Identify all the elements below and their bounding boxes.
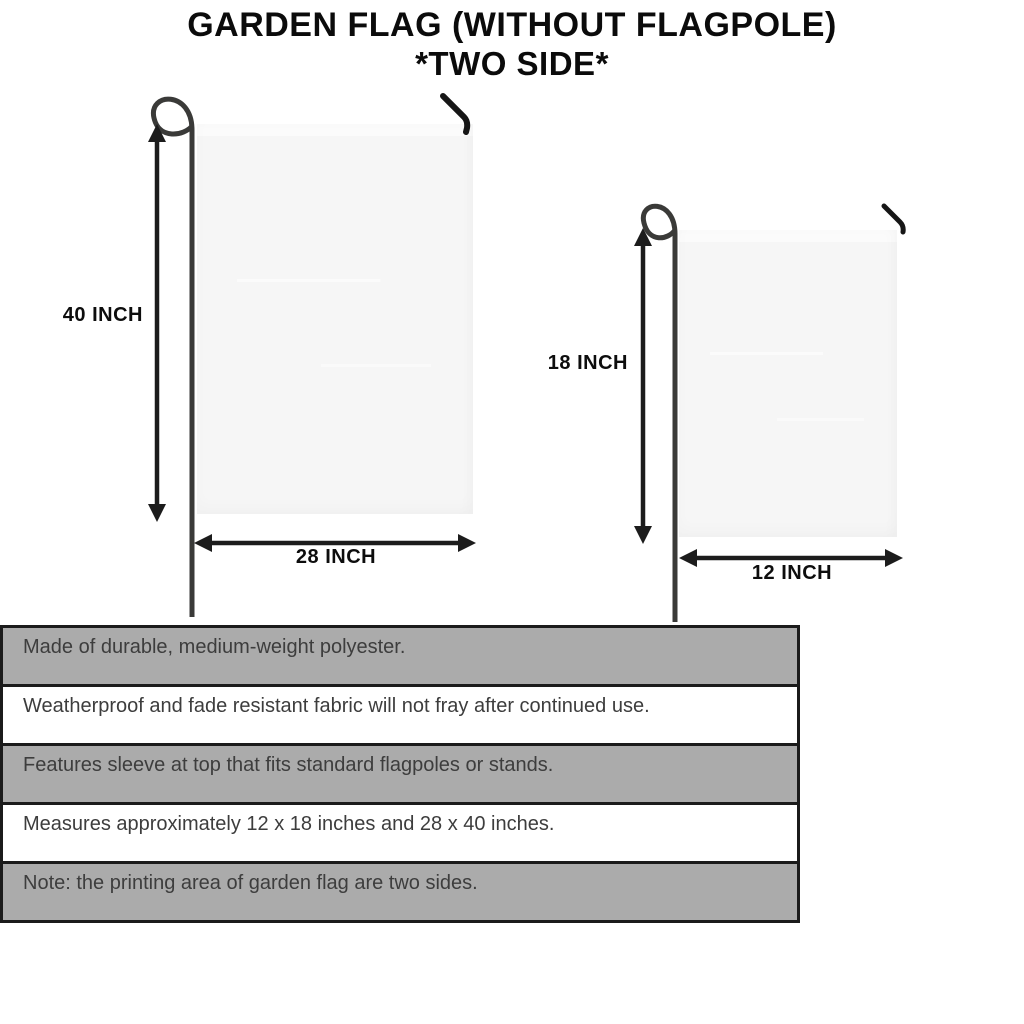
small-flag-panel xyxy=(679,230,897,537)
dimension-arrow-icon xyxy=(634,228,652,246)
page-title-line1: GARDEN FLAG (WITHOUT FLAGPOLE) xyxy=(0,6,1024,45)
large-flag-width-label: 28 INCH xyxy=(230,546,442,569)
small-flag-height-arrow xyxy=(630,228,656,544)
table-row: Note: the printing area of garden flag a… xyxy=(3,861,797,920)
large-flag-panel xyxy=(197,124,473,514)
dimension-arrow-icon xyxy=(148,124,166,142)
dimension-arrow-icon xyxy=(458,534,476,552)
large-flag-height-label: 40 INCH xyxy=(38,304,143,327)
table-row: Made of durable, medium-weight polyester… xyxy=(3,628,797,684)
table-row-text: Note: the printing area of garden flag a… xyxy=(23,872,478,894)
table-row: Weatherproof and fade resistant fabric w… xyxy=(3,684,797,743)
table-row-text: Measures approximately 12 x 18 inches an… xyxy=(23,813,554,835)
dimension-arrow-icon xyxy=(634,526,652,544)
small-flag-width-label: 12 INCH xyxy=(686,562,898,585)
hanger-hook-icon xyxy=(884,206,903,232)
table-row-text: Features sleeve at top that fits standar… xyxy=(23,754,553,776)
large-flag-hanger xyxy=(435,88,475,138)
product-info-image: GARDEN FLAG (WITHOUT FLAGPOLE) *TWO SIDE… xyxy=(0,0,1024,1024)
dimension-arrow-icon xyxy=(194,534,212,552)
page-title-line2: *TWO SIDE* xyxy=(0,45,1024,83)
dimension-arrow-icon xyxy=(148,504,166,522)
page-title: GARDEN FLAG (WITHOUT FLAGPOLE) *TWO SIDE… xyxy=(0,6,1024,83)
large-flag-height-arrow xyxy=(144,124,170,522)
hanger-hook-icon xyxy=(443,96,467,132)
spec-table: Made of durable, medium-weight polyester… xyxy=(0,625,800,923)
table-row-text: Made of durable, medium-weight polyester… xyxy=(23,636,405,658)
small-flag-hanger xyxy=(878,198,912,240)
small-flag-height-label: 18 INCH xyxy=(523,352,628,375)
table-row-text: Weatherproof and fade resistant fabric w… xyxy=(23,695,650,717)
table-row: Measures approximately 12 x 18 inches an… xyxy=(3,802,797,861)
table-row: Features sleeve at top that fits standar… xyxy=(3,743,797,802)
